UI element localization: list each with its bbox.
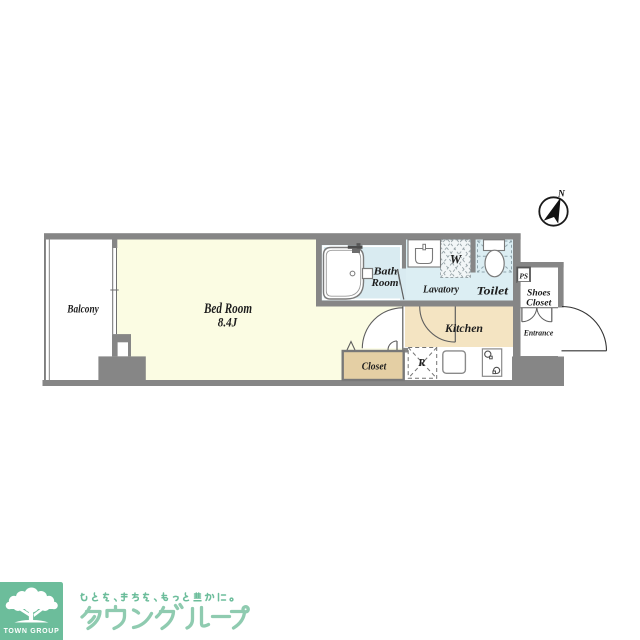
svg-text:8.4J: 8.4J	[218, 314, 238, 329]
svg-text:Closet: Closet	[362, 362, 387, 373]
svg-text:R: R	[417, 358, 425, 369]
svg-text:Bath: Bath	[373, 266, 398, 278]
svg-text:N: N	[557, 190, 566, 200]
svg-text:Balcony: Balcony	[66, 303, 99, 315]
svg-text:Entrance: Entrance	[523, 327, 554, 337]
svg-text:Toilet: Toilet	[477, 285, 510, 297]
svg-text:PS: PS	[519, 272, 528, 281]
svg-text:Lavatory: Lavatory	[422, 284, 459, 295]
svg-text:W: W	[450, 252, 463, 267]
svg-text:Closet: Closet	[526, 298, 551, 309]
svg-text:TOWN GROUP: TOWN GROUP	[4, 628, 60, 635]
svg-text:Room: Room	[370, 277, 398, 289]
svg-text:Kitchen: Kitchen	[444, 323, 483, 335]
